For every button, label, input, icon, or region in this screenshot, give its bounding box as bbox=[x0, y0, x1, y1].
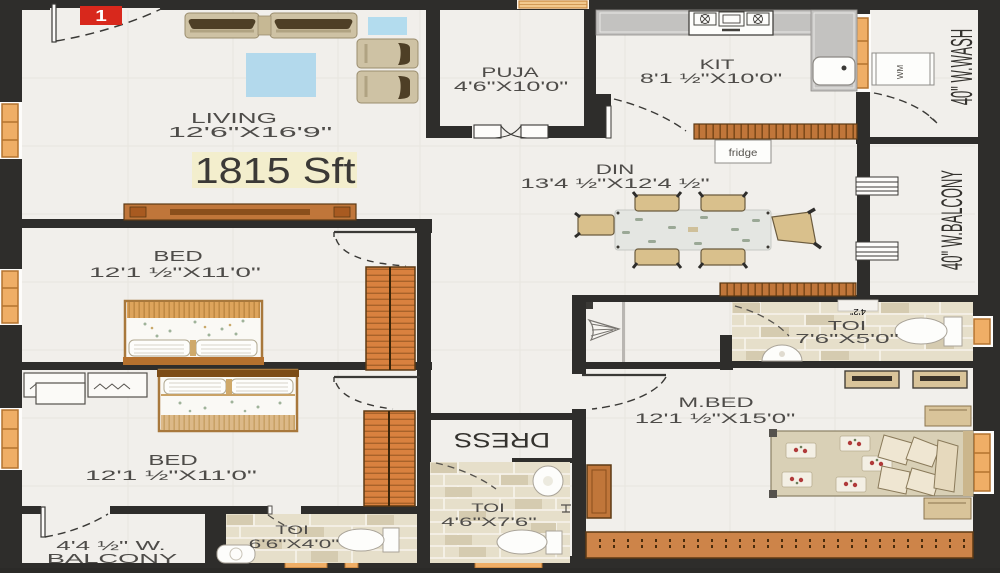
svg-text:6'6"X4'0": 6'6"X4'0" bbox=[249, 537, 340, 550]
svg-text:BED: BED bbox=[148, 452, 197, 468]
svg-text:12'1 ½"X11'0": 12'1 ½"X11'0" bbox=[85, 467, 257, 483]
svg-text:PUJA: PUJA bbox=[481, 64, 539, 80]
svg-text:7'6"X5'0": 7'6"X5'0" bbox=[795, 332, 899, 347]
svg-text:BED: BED bbox=[153, 248, 202, 264]
svg-text:12'1 ½"X15'0": 12'1 ½"X15'0" bbox=[635, 411, 796, 426]
svg-text:1815 Sft: 1815 Sft bbox=[195, 151, 356, 191]
svg-text:TOI: TOI bbox=[471, 501, 505, 515]
svg-text:40" W.WASH: 40" W.WASH bbox=[945, 29, 979, 105]
svg-text:M.BED: M.BED bbox=[678, 395, 753, 411]
svg-text:KIT: KIT bbox=[700, 56, 735, 72]
svg-text:WM: WM bbox=[896, 65, 905, 80]
svg-text:1: 1 bbox=[95, 6, 107, 24]
svg-text:8'1 ½"X10'0": 8'1 ½"X10'0" bbox=[640, 71, 782, 86]
svg-text:4'6"X10'0": 4'6"X10'0" bbox=[454, 79, 568, 94]
svg-text:12'6"X16'9": 12'6"X16'9" bbox=[168, 124, 332, 141]
svg-text:4'2": 4'2" bbox=[850, 307, 866, 316]
svg-text:13'4 ½"X12'4 ½": 13'4 ½"X12'4 ½" bbox=[520, 176, 709, 191]
svg-text:4'6"X7'6": 4'6"X7'6" bbox=[441, 516, 537, 529]
svg-text:TOI: TOI bbox=[275, 523, 309, 537]
svg-text:DRESS: DRESS bbox=[454, 428, 550, 451]
svg-text:fridge: fridge bbox=[729, 148, 758, 159]
svg-text:BALCONY: BALCONY bbox=[47, 551, 177, 566]
svg-text:40" W.BALCONY: 40" W.BALCONY bbox=[935, 170, 969, 270]
svg-text:DIN: DIN bbox=[596, 161, 635, 177]
svg-text:12'1 ½"X11'0": 12'1 ½"X11'0" bbox=[89, 264, 261, 280]
